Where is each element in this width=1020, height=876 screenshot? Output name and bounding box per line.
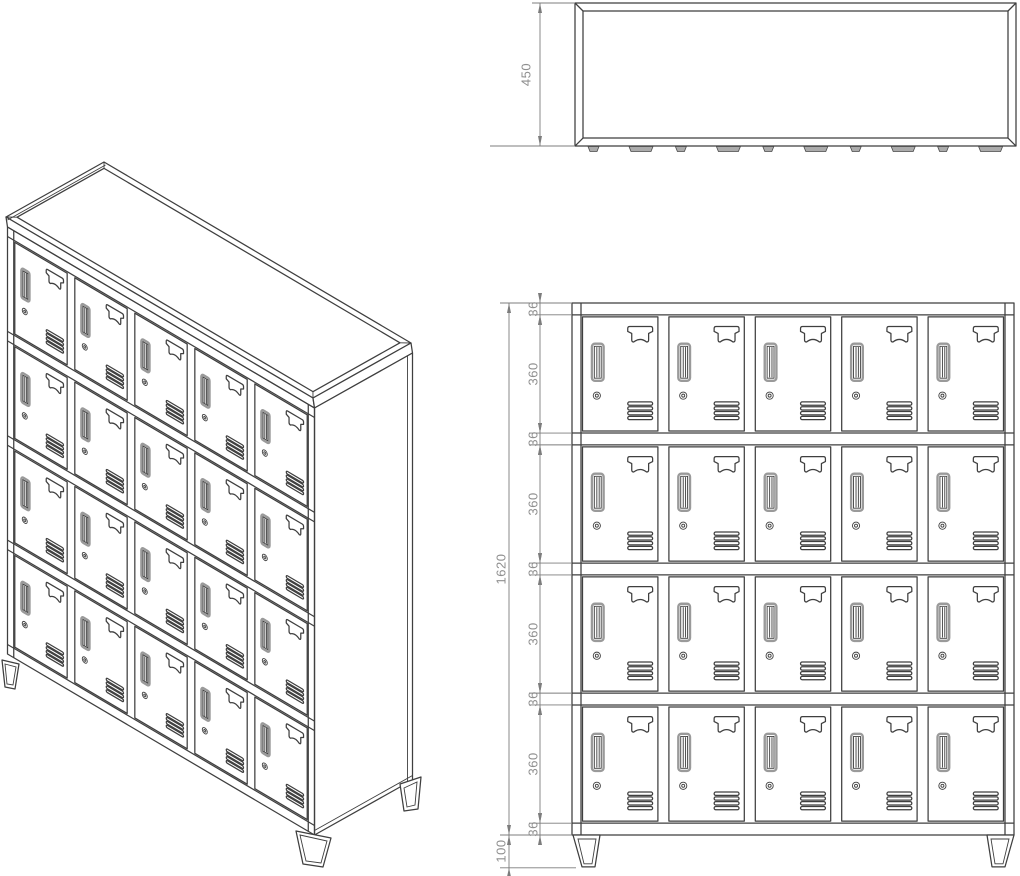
locker-door [669,317,744,431]
cam-lock-icon [939,652,946,659]
cam-lock-icon [262,449,267,458]
locker-door [669,707,744,821]
ventilation-slat-icon [714,676,739,679]
ventilation-slat-icon [973,412,998,415]
ventilation-slat-icon [628,532,653,535]
cam-lock-core [204,625,206,629]
ventilation-slat-icon [801,537,826,540]
ventilation-slat-icon [887,792,912,795]
dimension-label: 360 [526,622,541,645]
hinge-tab [891,147,915,152]
ventilation-slat-icon [973,537,998,540]
dimension-labels: 450 1620 100 36 360 36 360 36 360 36 360… [494,63,541,863]
ventilation-slat-icon [714,802,739,805]
cam-lock-core [855,654,858,657]
cam-lock-core [595,524,598,527]
hinge-tab [675,147,686,152]
ventilation-slat-icon [973,792,998,795]
ventilation-slat-icon [973,676,998,679]
hinge-tab [629,147,653,152]
ventilation-slat-icon [714,416,739,419]
cam-lock-icon [22,620,27,629]
ventilation-slat-icon [628,667,653,670]
ventilation-slat-icon [714,407,739,410]
ventilation-slat-icon [801,542,826,545]
front-face [572,303,1014,835]
ventilation-slat-icon [628,416,653,419]
ventilation-slat-icon [801,806,826,809]
cam-lock-icon [939,522,946,529]
cam-lock-core [941,524,944,527]
ventilation-slat-icon [887,667,912,670]
door-handle-icon [851,474,863,511]
dimension-label: 36 [526,561,541,576]
front-view [572,303,1014,867]
corner-chamfer [1008,3,1016,11]
ventilation-slat-icon [714,667,739,670]
locker-door [669,447,744,561]
shelf-rail-line [8,236,315,417]
dimension-label: 100 [494,839,509,862]
door-handle-icon [592,734,604,771]
door-handle-icon [765,474,777,511]
hinge-tab [850,147,861,152]
cam-lock-icon [202,413,207,422]
side-panel [315,353,413,835]
name-card-holder-icon [887,587,912,602]
dimension-label: 360 [526,362,541,385]
ventilation-slat-icon [887,537,912,540]
cam-lock-core [941,654,944,657]
name-card-holder-icon [46,269,63,292]
ventilation-slat-icon [887,546,912,549]
cam-lock-core [595,654,598,657]
locker-door [195,557,247,680]
ventilation-slat-icon [801,662,826,665]
cam-lock-icon [680,392,687,399]
cam-lock-icon [593,782,600,789]
dimension-arrowhead [507,825,511,835]
cam-lock-core [768,784,771,787]
ventilation-slat-icon [973,542,998,545]
ventilation-slat-icon [801,412,826,415]
name-card-holder-icon [801,587,826,602]
ventilation-slat-icon [801,802,826,805]
cam-lock-core [855,394,858,397]
cam-lock-icon [202,726,207,735]
ventilation-slat-icon [887,532,912,535]
name-card-holder-icon [801,327,826,342]
name-card-holder-icon [106,408,123,431]
top-panel-inner [583,11,1008,138]
cam-lock-icon [262,657,267,666]
ventilation-slat-icon [801,402,826,405]
ventilation-slat-icon [973,532,998,535]
cam-lock-core [264,451,266,455]
ventilation-slat-icon [887,402,912,405]
name-card-holder-icon [286,619,303,642]
ventilation-slat-icon [801,546,826,549]
cam-lock-icon [262,762,267,771]
cam-lock-icon [766,392,773,399]
cam-lock-core [855,524,858,527]
cam-lock-core [941,394,944,397]
door-handle-icon [765,344,777,381]
ventilation-slat-icon [973,802,998,805]
ventilation-slat-icon [628,407,653,410]
door-handle-icon [938,344,950,381]
ventilation-slat-icon [973,662,998,665]
locker-door [755,317,830,431]
ventilation-slat-icon [714,412,739,415]
hinge-tab [804,147,828,152]
name-card-holder-icon [166,444,183,467]
isometric-view [2,162,421,867]
ventilation-slat-icon [973,407,998,410]
ventilation-slat-icon [714,532,739,535]
name-card-holder-icon [628,327,653,342]
locker-door [75,278,127,401]
ventilation-slat-icon [887,416,912,419]
ventilation-slat-icon [714,662,739,665]
name-card-holder-icon [973,587,998,602]
locker-door [755,707,830,821]
cam-lock-icon [22,516,27,525]
name-card-holder-icon [801,717,826,732]
hinge-tab [979,147,1003,152]
cam-lock-core [768,654,771,657]
cam-lock-core [682,784,685,787]
door-handle-icon [678,474,690,511]
ventilation-slat-icon [628,797,653,800]
cam-lock-core [144,589,146,593]
locker-door [842,577,917,691]
locker-door [195,453,247,576]
name-card-holder-icon [714,587,739,602]
locker-door [135,313,187,436]
door-handle-icon [938,474,950,511]
cam-lock-icon [766,782,773,789]
name-card-holder-icon [226,688,243,711]
locker-door [255,593,307,716]
cam-lock-core [682,394,685,397]
cam-lock-core [855,784,858,787]
cam-lock-icon [593,652,600,659]
cam-lock-icon [142,691,147,700]
cam-lock-core [144,380,146,384]
name-card-holder-icon [286,723,303,746]
corner-chamfer [575,138,583,146]
dimension-label: 1620 [494,554,509,585]
locker-door [195,662,247,785]
locker-door [15,242,67,365]
locker-door [842,707,917,821]
hinge-tab [588,147,599,152]
cam-lock-core [24,623,26,627]
cam-lock-icon [22,307,27,316]
cam-lock-icon [82,656,87,665]
cam-lock-icon [202,518,207,527]
name-card-holder-icon [226,479,243,502]
cam-lock-icon [766,522,773,529]
door-handle-icon [938,604,950,641]
name-card-holder-icon [887,717,912,732]
cam-lock-icon [202,622,207,631]
ventilation-slat-icon [887,672,912,675]
corner-chamfer [1008,138,1016,146]
cam-lock-icon [680,522,687,529]
lid-corner [99,162,110,168]
dimension-arrowhead [538,3,542,13]
locker-door [75,487,127,610]
door-handle-icon [678,604,690,641]
locker-door [755,577,830,691]
cam-lock-core [595,784,598,787]
locker-door [928,447,1003,561]
cam-lock-core [84,554,86,558]
name-card-holder-icon [106,513,123,536]
cam-lock-core [144,485,146,489]
cam-lock-core [595,394,598,397]
hinge-tab [938,147,949,152]
door-handle-icon [851,734,863,771]
name-card-holder-icon [714,327,739,342]
ventilation-slat-icon [801,416,826,419]
locker-door [135,418,187,541]
top-view [575,3,1016,152]
ventilation-slat-icon [973,667,998,670]
ventilation-slat-icon [973,546,998,549]
ventilation-slat-icon [628,806,653,809]
locker-door [15,451,67,574]
cam-lock-icon [852,392,859,399]
name-card-holder-icon [887,327,912,342]
name-card-holder-icon [226,584,243,607]
name-card-holder-icon [628,717,653,732]
name-card-holder-icon [286,515,303,538]
ventilation-slat-icon [887,407,912,410]
dimension-label: 450 [519,63,534,86]
hinge-tab [763,147,774,152]
ventilation-slat-icon [801,797,826,800]
isometric-front-face [8,227,315,835]
dimension-label: 36 [526,301,541,316]
dimension-arrowhead [507,868,511,876]
ventilation-slat-icon [628,802,653,805]
name-card-holder-icon [166,548,183,571]
locker-door [928,577,1003,691]
name-card-holder-icon [166,653,183,676]
ventilation-slat-icon [887,797,912,800]
technical-drawing-canvas: 450 1620 100 36 360 36 360 36 360 36 360… [0,0,1020,876]
name-card-holder-icon [106,304,123,327]
ventilation-slat-icon [887,542,912,545]
top-panel-outline [575,3,1016,146]
ventilation-slat-icon [801,667,826,670]
ventilation-slat-icon [887,662,912,665]
ventilation-slat-icon [714,542,739,545]
cam-lock-core [24,414,26,418]
cam-lock-icon [939,782,946,789]
locker-door [583,707,658,821]
door-handle-icon [592,344,604,381]
door-handle-icon [678,344,690,381]
ventilation-slat-icon [628,662,653,665]
dimension-label: 360 [526,752,541,775]
door-handle-icon [592,474,604,511]
locker-door [842,447,917,561]
name-card-holder-icon [714,717,739,732]
cam-lock-icon [82,551,87,560]
ventilation-slat-icon [628,542,653,545]
name-card-holder-icon [286,410,303,433]
ventilation-slat-icon [887,676,912,679]
cam-lock-icon [852,652,859,659]
ventilation-slat-icon [973,402,998,405]
ventilation-slat-icon [714,537,739,540]
locker-door [583,317,658,431]
name-card-holder-icon [628,587,653,602]
locker-door [135,626,187,749]
ventilation-slat-icon [973,797,998,800]
locker-three-view-drawing: 450 1620 100 36 360 36 360 36 360 36 360… [0,0,1020,876]
locker-door [75,382,127,505]
ventilation-slat-icon [801,792,826,795]
corner-chamfer [575,3,583,11]
cam-lock-core [204,520,206,524]
name-card-holder-icon [46,582,63,605]
cam-lock-icon [262,553,267,562]
cam-lock-icon [680,782,687,789]
door-handle-icon [592,604,604,641]
cam-lock-core [264,556,266,560]
dimension-label: 360 [526,492,541,515]
cam-lock-icon [939,392,946,399]
ventilation-slat-icon [801,672,826,675]
ventilation-slat-icon [801,676,826,679]
ventilation-slat-icon [887,806,912,809]
locker-door [928,707,1003,821]
locker-door [255,697,307,820]
ventilation-slat-icon [714,806,739,809]
ventilation-slat-icon [887,412,912,415]
dimension-arrowhead [507,303,511,313]
ventilation-slat-icon [714,402,739,405]
cam-lock-icon [82,343,87,352]
name-card-holder-icon [801,457,826,472]
name-card-holder-icon [973,457,998,472]
ventilation-slat-icon [887,802,912,805]
door-handle-icon [765,604,777,641]
ventilation-slat-icon [973,672,998,675]
locker-door [669,577,744,691]
name-card-holder-icon [628,457,653,472]
locker-door [928,317,1003,431]
name-card-holder-icon [46,373,63,396]
ventilation-slat-icon [973,806,998,809]
ventilation-slat-icon [714,672,739,675]
ventilation-slat-icon [801,407,826,410]
ventilation-slat-icon [628,792,653,795]
cam-lock-core [24,518,26,522]
hinge-tab [716,147,740,152]
cam-lock-icon [142,378,147,387]
cam-lock-core [144,694,146,698]
cam-lock-icon [82,447,87,456]
cam-lock-icon [142,482,147,491]
ventilation-slat-icon [714,546,739,549]
ventilation-slat-icon [714,792,739,795]
cam-lock-core [264,764,266,768]
ventilation-slat-icon [628,676,653,679]
cam-lock-core [941,784,944,787]
locker-door [255,488,307,611]
name-card-holder-icon [714,457,739,472]
cam-lock-icon [22,412,27,421]
locker-door [15,347,67,470]
cam-lock-icon [593,522,600,529]
dimension-label: 36 [526,431,541,446]
name-card-holder-icon [46,477,63,500]
lid-back-edge [8,165,106,220]
cam-lock-icon [680,652,687,659]
ventilation-slat-icon [714,797,739,800]
cam-lock-icon [852,522,859,529]
locker-door [842,317,917,431]
locker-door [583,577,658,691]
locker-door [195,349,247,472]
door-handle-icon [765,734,777,771]
cam-lock-core [768,524,771,527]
ventilation-slat-icon [628,412,653,415]
dimension-arrowhead [538,136,542,146]
door-handle-icon [938,734,950,771]
ventilation-slat-icon [628,537,653,540]
door-handle-icon [851,604,863,641]
cam-lock-core [204,416,206,420]
cam-lock-icon [593,392,600,399]
locker-door [135,522,187,645]
locker-door [15,556,67,679]
door-handle-icon [678,734,690,771]
cam-lock-core [24,310,26,314]
dimension-label: 36 [526,821,541,836]
locker-door [75,591,127,714]
ventilation-slat-icon [801,532,826,535]
cam-lock-core [682,654,685,657]
cam-lock-core [84,345,86,349]
name-card-holder-icon [226,375,243,398]
ventilation-slat-icon [973,416,998,419]
cam-lock-core [264,660,266,664]
ventilation-slat-icon [628,672,653,675]
name-card-holder-icon [973,717,998,732]
name-card-holder-icon [106,617,123,640]
name-card-holder-icon [166,339,183,362]
cam-lock-core [682,524,685,527]
cam-lock-icon [766,652,773,659]
cam-lock-core [768,394,771,397]
cam-lock-icon [142,587,147,596]
dimension-label: 36 [526,691,541,706]
locker-door [583,447,658,561]
cam-lock-core [84,658,86,662]
name-card-holder-icon [973,327,998,342]
ventilation-slat-icon [628,402,653,405]
locker-door [255,384,307,507]
cam-lock-core [204,729,206,733]
door-handle-icon [851,344,863,381]
